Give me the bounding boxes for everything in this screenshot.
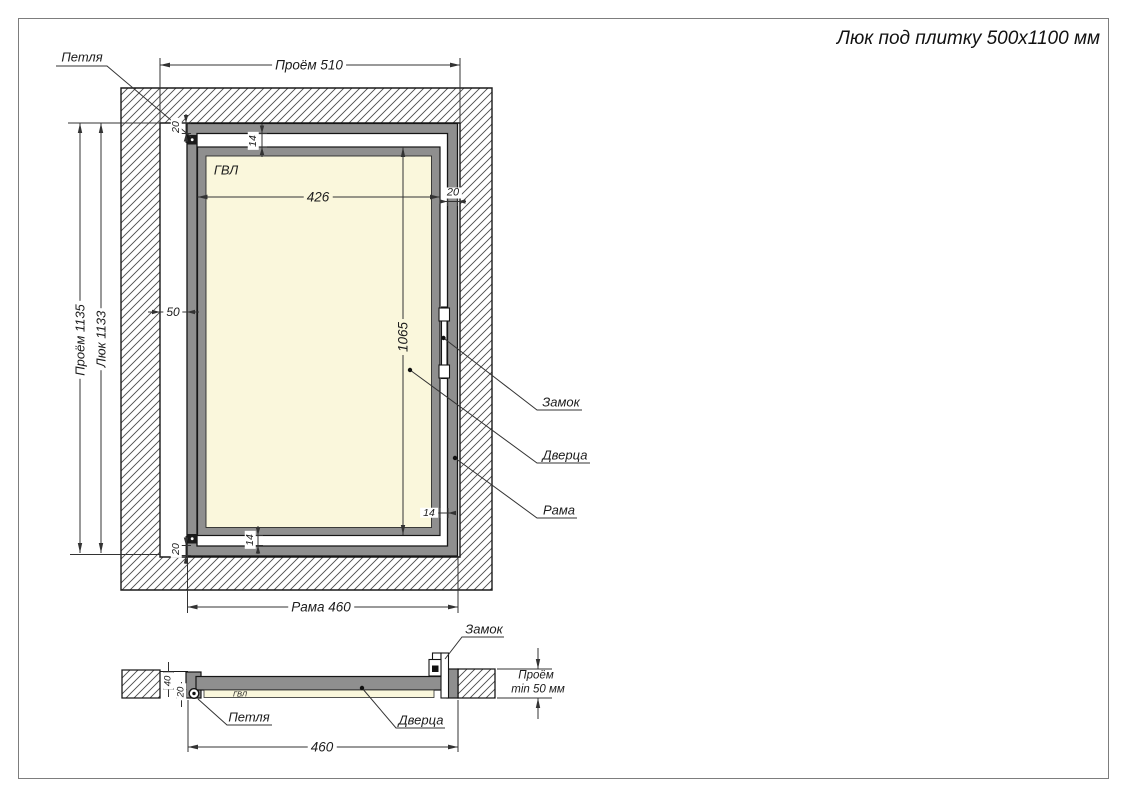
dim-profile-bottom: 20 [171, 540, 182, 558]
front-view [56, 58, 590, 613]
section-lock-label: Замок [465, 623, 503, 636]
dim-profile-right: 20 [444, 187, 462, 198]
section-door-leader-dot [360, 686, 364, 690]
front-hinge-bottom [188, 534, 198, 544]
section-gvl-label: ГВЛ [233, 690, 247, 698]
dim-section-panel-thickness: 20 [176, 684, 186, 701]
section-wall-left [122, 670, 160, 698]
dim-gap-bottom: 14 [245, 531, 256, 549]
dim-section-depth: 40 [163, 672, 173, 689]
dim-profile-top: 20 [171, 118, 182, 136]
dim-panel-width: 426 [304, 190, 333, 204]
dim-gap-right: 14 [420, 507, 438, 518]
section-view [122, 637, 552, 752]
dim-opening-depth-line2: min 50 мм [511, 684, 564, 696]
section-hinge-label: Петля [228, 711, 269, 724]
front-hinge-label: Петля [61, 51, 102, 64]
section-dimensions [163, 648, 552, 752]
front-frame-label: Рама [543, 504, 575, 517]
dim-gap-top: 14 [248, 132, 259, 150]
front-gvl-label: ГВЛ [214, 164, 238, 177]
drawing-sheet: Люк под плитку 500х1100 мм Петля ГВЛ Зам… [0, 0, 1131, 800]
section-hinge [189, 689, 199, 699]
dim-frame-width: Рама 460 [288, 600, 354, 614]
drawing-title: Люк под плитку 500х1100 мм [700, 28, 1100, 50]
dim-opening-depth-line1: Проём [518, 670, 553, 682]
front-door-label: Дверца [543, 449, 588, 462]
dim-offset-left: 50 [163, 306, 182, 318]
section-wall-right [458, 669, 495, 698]
front-lock-label: Замок [542, 396, 580, 409]
section-door-label: Дверца [399, 714, 444, 727]
dim-opening-width: Проём 510 [272, 58, 346, 72]
dim-panel-height: 1065 [396, 319, 410, 355]
front-hinge-top [188, 135, 198, 145]
dim-section-width: 460 [308, 740, 337, 754]
dim-hatch-height: Люк 1133 [95, 308, 108, 370]
dim-opening-height: Проём 1135 [74, 301, 87, 379]
